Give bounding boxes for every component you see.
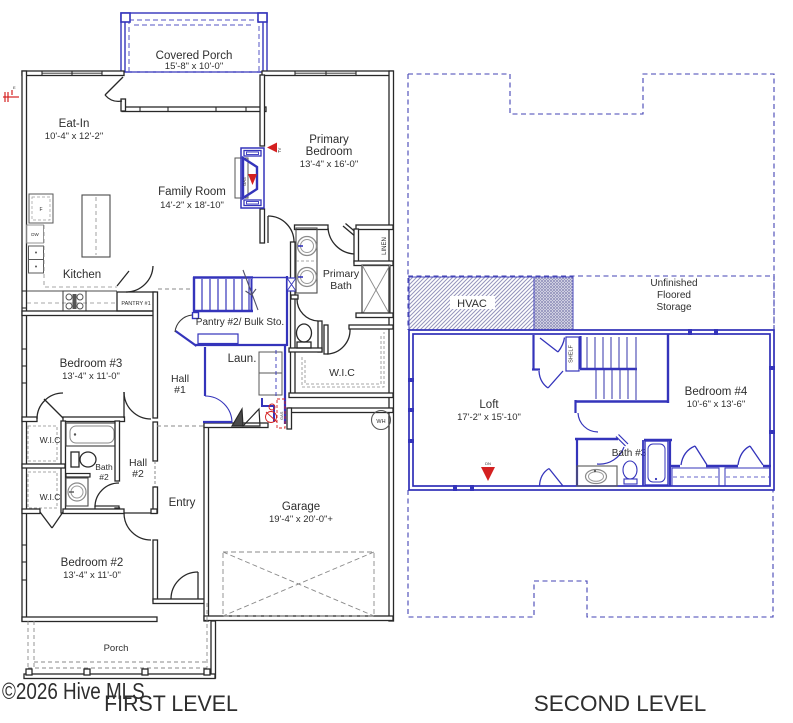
svg-text:Bedroom #3: Bedroom #3 bbox=[60, 358, 123, 370]
svg-text:15'-8" x 10'-0": 15'-8" x 10'-0" bbox=[165, 61, 223, 72]
svg-text:Pantry #2/ Bulk Sto.: Pantry #2/ Bulk Sto. bbox=[196, 317, 284, 328]
svg-text:WH: WH bbox=[376, 419, 385, 425]
svg-text:Porch: Porch bbox=[104, 643, 129, 654]
svg-text:GAS: GAS bbox=[242, 177, 247, 186]
svg-text:Storage: Storage bbox=[656, 302, 691, 313]
svg-text:13'-4" x 11'-0": 13'-4" x 11'-0" bbox=[62, 371, 120, 382]
svg-text:Eat-In: Eat-In bbox=[59, 118, 90, 130]
svg-text:W.I.C: W.I.C bbox=[40, 492, 61, 502]
svg-text:W.I.C: W.I.C bbox=[40, 435, 61, 445]
svg-text:Primary: Primary bbox=[309, 134, 349, 146]
svg-text:Kitchen: Kitchen bbox=[63, 269, 101, 281]
svg-text:SHELF: SHELF bbox=[569, 344, 575, 362]
svg-text:DN: DN bbox=[485, 461, 491, 466]
svg-text:W.I.C: W.I.C bbox=[329, 367, 355, 379]
svg-text:GAS: GAS bbox=[279, 411, 284, 420]
svg-text:Bedroom #2: Bedroom #2 bbox=[61, 557, 124, 569]
svg-text:LINEN: LINEN bbox=[382, 237, 388, 255]
svg-text:19'-4" x 20'-0"+: 19'-4" x 20'-0"+ bbox=[269, 514, 333, 525]
svg-text:17'-2" x 15'-10": 17'-2" x 15'-10" bbox=[457, 412, 521, 423]
svg-text:Unfinished: Unfinished bbox=[650, 278, 697, 289]
svg-text:Bath: Bath bbox=[330, 280, 352, 292]
svg-text:10'-6" x 13'-6": 10'-6" x 13'-6" bbox=[687, 399, 745, 410]
svg-text:13'-4" x 11'-0": 13'-4" x 11'-0" bbox=[63, 570, 121, 581]
svg-text:10'-4" x 12'-2": 10'-4" x 12'-2" bbox=[45, 131, 103, 142]
svg-text:#2: #2 bbox=[132, 468, 144, 480]
svg-text:FIRST LEVEL: FIRST LEVEL bbox=[104, 690, 238, 716]
svg-text:13'-4" x 16'-0": 13'-4" x 16'-0" bbox=[300, 159, 358, 170]
svg-text:Bedroom #4: Bedroom #4 bbox=[685, 386, 748, 398]
svg-text:Loft: Loft bbox=[479, 399, 499, 411]
svg-text:HVAC: HVAC bbox=[457, 298, 487, 310]
svg-text:F: F bbox=[39, 207, 42, 213]
svg-text:#1: #1 bbox=[174, 384, 186, 396]
svg-text:Family Room: Family Room bbox=[158, 186, 226, 198]
svg-text:14'-2" x 18'-10": 14'-2" x 18'-10" bbox=[160, 200, 224, 211]
svg-text:Laun.: Laun. bbox=[228, 353, 257, 365]
svg-text:TV: TV bbox=[277, 147, 282, 153]
svg-text:Entry: Entry bbox=[169, 497, 196, 509]
svg-text:Bedroom: Bedroom bbox=[306, 146, 353, 158]
svg-text:E: E bbox=[13, 85, 16, 90]
svg-text:Bath #3: Bath #3 bbox=[612, 448, 647, 459]
svg-text:Floored: Floored bbox=[657, 290, 691, 301]
svg-text:Bath: Bath bbox=[95, 462, 113, 472]
svg-text:Primary: Primary bbox=[323, 268, 360, 280]
svg-text:PANTRY #1: PANTRY #1 bbox=[121, 301, 150, 307]
svg-text:SECOND LEVEL: SECOND LEVEL bbox=[534, 691, 707, 716]
svg-text:Garage: Garage bbox=[282, 501, 320, 513]
svg-text:#2: #2 bbox=[99, 472, 109, 482]
svg-text:DW: DW bbox=[31, 232, 39, 237]
